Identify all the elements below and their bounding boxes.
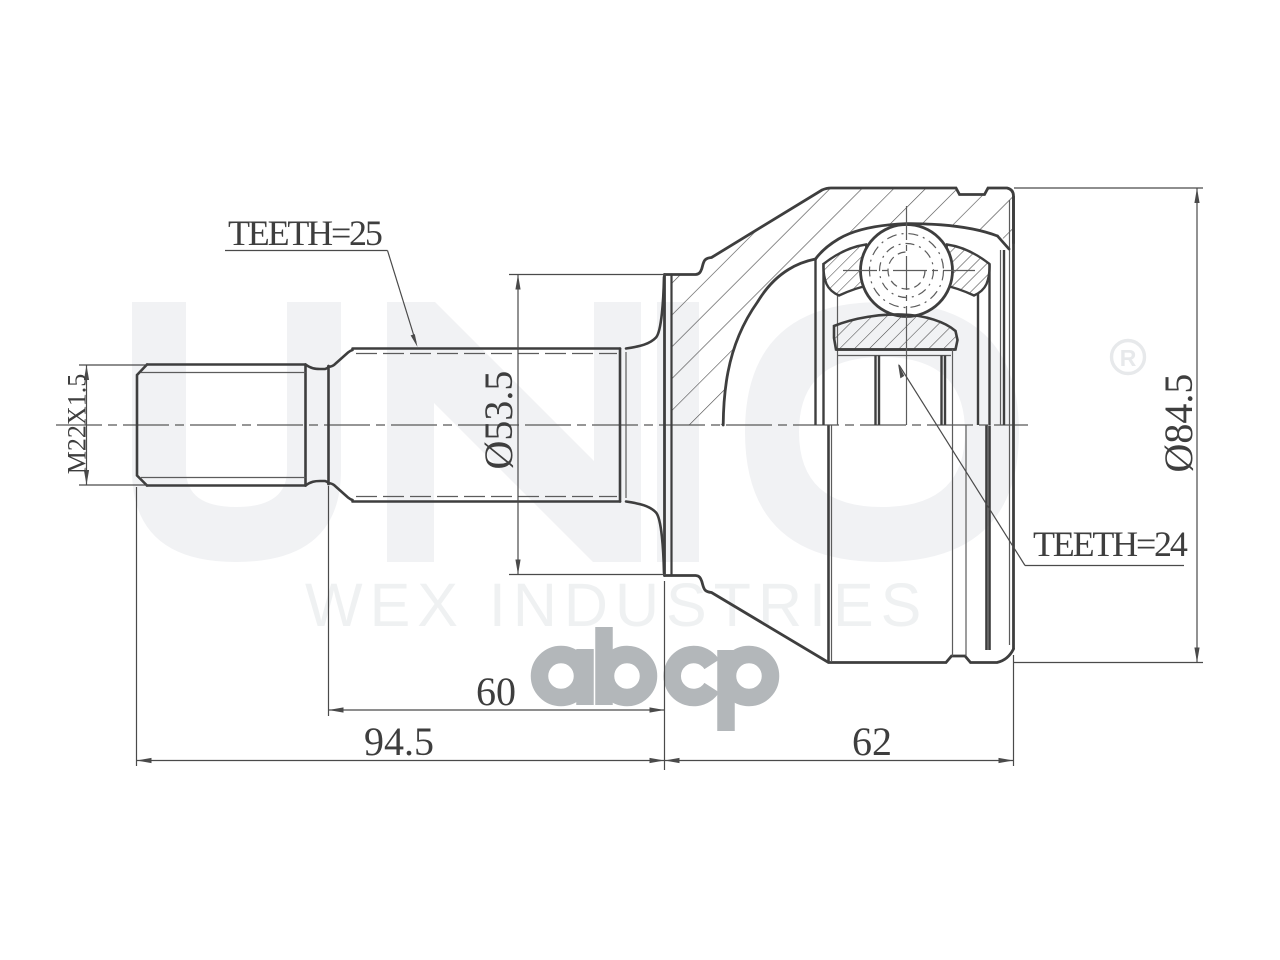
svg-text:Ø53.5: Ø53.5 [476, 371, 521, 470]
svg-text:TEETH=24: TEETH=24 [1033, 524, 1188, 564]
svg-text:R: R [1120, 345, 1137, 371]
svg-text:TEETH=25: TEETH=25 [228, 213, 382, 253]
svg-text:WEX INDUSTRIES: WEX INDUSTRIES [305, 571, 928, 639]
svg-text:94.5: 94.5 [364, 719, 434, 764]
svg-text:60: 60 [476, 669, 516, 714]
svg-text:62: 62 [852, 719, 892, 764]
svg-text:Ø84.5: Ø84.5 [1156, 374, 1201, 473]
svg-text:M22X1.5: M22X1.5 [63, 374, 92, 474]
